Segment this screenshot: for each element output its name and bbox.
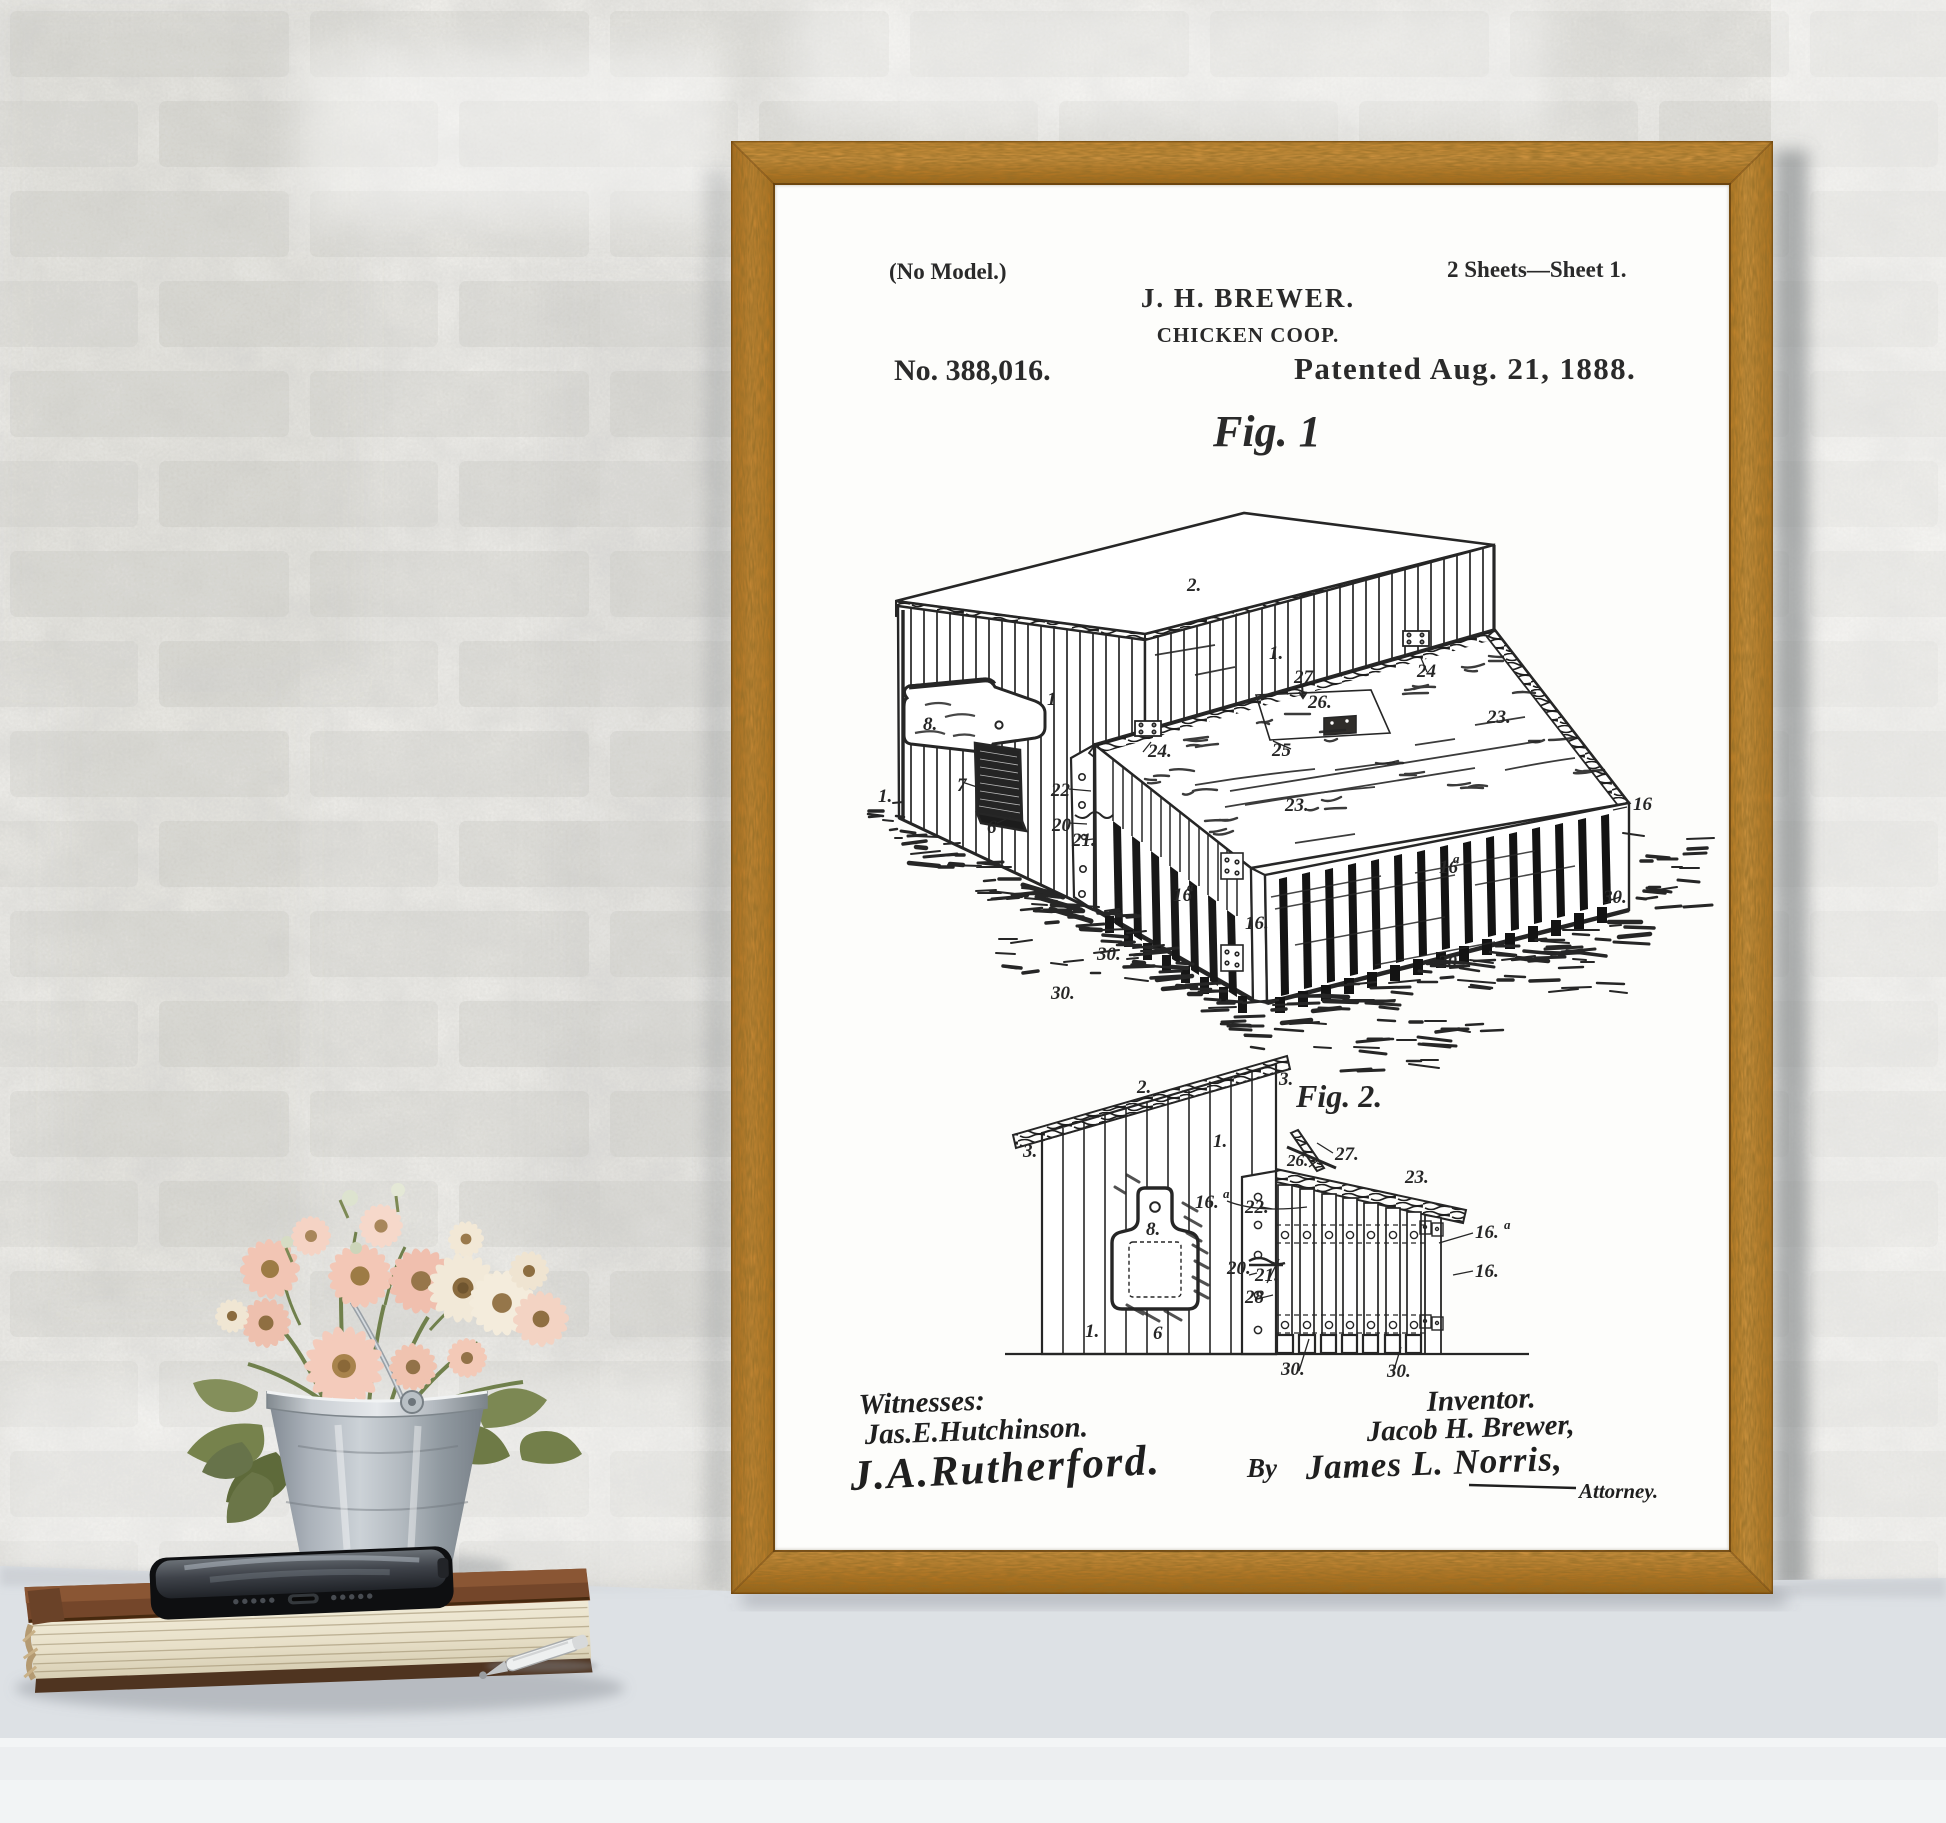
svg-text:16.: 16. xyxy=(1245,913,1269,934)
svg-text:1.: 1. xyxy=(1269,643,1283,664)
svg-text:27.: 27. xyxy=(1293,667,1318,688)
svg-text:3.: 3. xyxy=(1278,1069,1293,1090)
svg-text:23.: 23. xyxy=(1284,795,1309,816)
svg-text:a: a xyxy=(1453,851,1460,866)
svg-text:7: 7 xyxy=(957,775,968,796)
svg-text:24: 24 xyxy=(1416,661,1436,682)
svg-text:26.: 26. xyxy=(1307,692,1332,713)
svg-text:8.: 8. xyxy=(923,714,937,735)
svg-text:Fig. 2.: Fig. 2. xyxy=(1295,1078,1382,1114)
svg-text:6: 6 xyxy=(987,817,997,838)
svg-text:20: 20 xyxy=(1051,815,1072,836)
svg-text:Fig. 1: Fig. 1 xyxy=(1212,407,1321,456)
svg-text:30.: 30. xyxy=(1050,983,1075,1004)
svg-text:1.: 1. xyxy=(1213,1131,1227,1152)
svg-text:a: a xyxy=(1223,1186,1230,1201)
svg-text:16: 16 xyxy=(1633,794,1653,815)
svg-text:24.: 24. xyxy=(1147,741,1172,762)
svg-text:James L. Norris,: James L. Norris, xyxy=(1304,1439,1563,1487)
svg-text:1.: 1. xyxy=(1085,1321,1099,1342)
svg-text:2 Sheets—Sheet 1.: 2 Sheets—Sheet 1. xyxy=(1447,257,1627,282)
svg-text:By: By xyxy=(1246,1453,1278,1483)
svg-text:23.: 23. xyxy=(1404,1167,1429,1188)
svg-text:6: 6 xyxy=(1153,1323,1163,1344)
svg-text:No. 388,016.: No. 388,016. xyxy=(894,354,1051,387)
svg-text:16.: 16. xyxy=(1475,1222,1499,1243)
svg-text:25: 25 xyxy=(1271,740,1292,761)
svg-text:21.: 21. xyxy=(1071,830,1096,851)
svg-text:22: 22 xyxy=(1050,780,1071,801)
svg-text:27.: 27. xyxy=(1334,1144,1359,1165)
svg-text:a: a xyxy=(1504,1217,1511,1232)
svg-text:1: 1 xyxy=(1047,689,1057,710)
svg-text:16.: 16. xyxy=(1475,1261,1499,1282)
svg-text:30.: 30. xyxy=(1386,1361,1411,1382)
svg-text:16.: 16. xyxy=(1195,1192,1219,1213)
svg-text:Attorney.: Attorney. xyxy=(1577,1479,1658,1503)
svg-text:26.: 26. xyxy=(1286,1151,1308,1170)
svg-text:2.: 2. xyxy=(1136,1077,1151,1098)
svg-text:2.: 2. xyxy=(1186,575,1201,596)
svg-text:3.: 3. xyxy=(1022,1141,1037,1162)
svg-text:30.: 30. xyxy=(1096,944,1121,965)
svg-text:a: a xyxy=(1187,879,1194,894)
svg-text:30.: 30. xyxy=(1280,1359,1305,1380)
svg-text:30.: 30. xyxy=(1602,887,1627,908)
svg-text:30: 30 xyxy=(1437,952,1458,973)
svg-text:1.: 1. xyxy=(878,786,892,807)
svg-text:J. H. BREWER.: J. H. BREWER. xyxy=(1141,283,1355,313)
svg-text:23.: 23. xyxy=(1486,707,1511,728)
svg-text:8.: 8. xyxy=(1146,1219,1160,1240)
svg-text:Patented Aug. 21, 1888.: Patented Aug. 21, 1888. xyxy=(1294,351,1636,386)
svg-text:CHICKEN COOP.: CHICKEN COOP. xyxy=(1157,323,1340,347)
svg-text:20.: 20. xyxy=(1226,1258,1251,1279)
svg-text:(No Model.): (No Model.) xyxy=(889,259,1007,284)
